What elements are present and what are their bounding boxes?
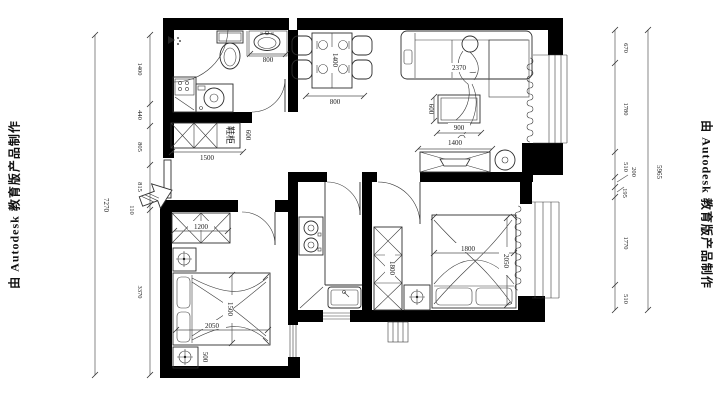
- bed-left: [173, 273, 270, 345]
- dim-bed-left-length: 2050: [205, 322, 220, 330]
- dim-left-chain-1: 440: [136, 110, 143, 120]
- dim-shoe-width: 1500: [200, 154, 215, 162]
- dim-left-chain-2: 805: [136, 142, 143, 152]
- dim-right-chain-0: 670: [622, 43, 629, 53]
- dim-right-chain-4: 195: [621, 188, 628, 198]
- exterior-window-unit: [388, 322, 408, 342]
- dim-wardrobe-left: 1200: [194, 223, 209, 231]
- bathroom-door: [252, 79, 285, 112]
- bathroom-fixtures: [168, 30, 287, 112]
- kitchen-door: [327, 182, 360, 215]
- floorplan-canvas: 800 800 1400 2370 600 900 1400 1500 600 …: [0, 0, 720, 405]
- tv-cabinet: [420, 152, 490, 172]
- stove-icon: [299, 217, 323, 255]
- bedroom-right-door: [378, 182, 420, 224]
- remote-icon: [404, 50, 412, 64]
- dim-bath-basin: 800: [263, 56, 274, 64]
- dim-left-total: 7270: [102, 198, 110, 213]
- nightstand-left-top: [173, 248, 196, 271]
- autodesk-watermark-right: 由 Autodesk 教育版产品制作: [699, 75, 716, 335]
- dim-coffee-width: 900: [454, 124, 465, 132]
- toilet-icon: [217, 31, 243, 69]
- dim-bed-right-width: 1800: [461, 245, 476, 253]
- dim-nightstand-left: 500: [201, 352, 209, 363]
- bay-window-living: [533, 55, 567, 143]
- dim-wardrobe-right: 1800: [388, 261, 396, 276]
- dim-dining-width: 800: [330, 98, 341, 106]
- autodesk-watermark-left: 由 Autodesk 教育版产品制作: [6, 75, 23, 335]
- dim-left-chain-0: 1400: [136, 63, 143, 76]
- coffee-table: [438, 95, 480, 123]
- nightstand-left-bottom: [173, 347, 198, 368]
- dim-right-chain-3: 200: [630, 167, 637, 177]
- dim-right-chain-5: 1770: [622, 237, 629, 250]
- nightstand-right: [404, 285, 430, 310]
- bedroom-left-window: [288, 325, 298, 357]
- bedroom-left-door: [242, 212, 275, 245]
- bay-window-bedroom: [532, 202, 559, 298]
- tv-icon: [440, 159, 470, 166]
- dim-right-chain-1: 1780: [622, 103, 629, 116]
- label-shoe-cabinet: 鞋柜: [225, 126, 236, 144]
- dim-sofa: 2370: [452, 64, 467, 72]
- washing-machine-icon: [196, 84, 233, 112]
- kitchen-counter: [300, 182, 362, 308]
- plant-stool-icon: [495, 150, 515, 170]
- dim-tv-cabinet: 1400: [448, 139, 463, 147]
- dim-shoe-depth: 600: [244, 130, 252, 141]
- dim-left-chain-4: 110: [128, 205, 135, 215]
- kitchen-window: [323, 310, 350, 322]
- dim-bed-right-length: 2050: [502, 254, 510, 269]
- dim-right-total: 5965: [655, 165, 663, 180]
- dim-right-chain-6: 510: [622, 294, 629, 304]
- dim-left-chain-5: 3370: [136, 286, 143, 299]
- floorplan-drawing: 800 800 1400 2370 600 900 1400 1500 600 …: [0, 0, 720, 405]
- dim-left-chain-3: 815: [136, 182, 143, 192]
- dim-bed-left-width: 1500: [226, 302, 234, 317]
- kitchen-sink-icon: [328, 287, 361, 308]
- dim-right-chain-2: 510: [622, 162, 629, 172]
- dim-dining-length: 1400: [331, 53, 339, 68]
- wash-basin-icon: [249, 31, 287, 56]
- dim-coffee-depth: 600: [427, 104, 435, 115]
